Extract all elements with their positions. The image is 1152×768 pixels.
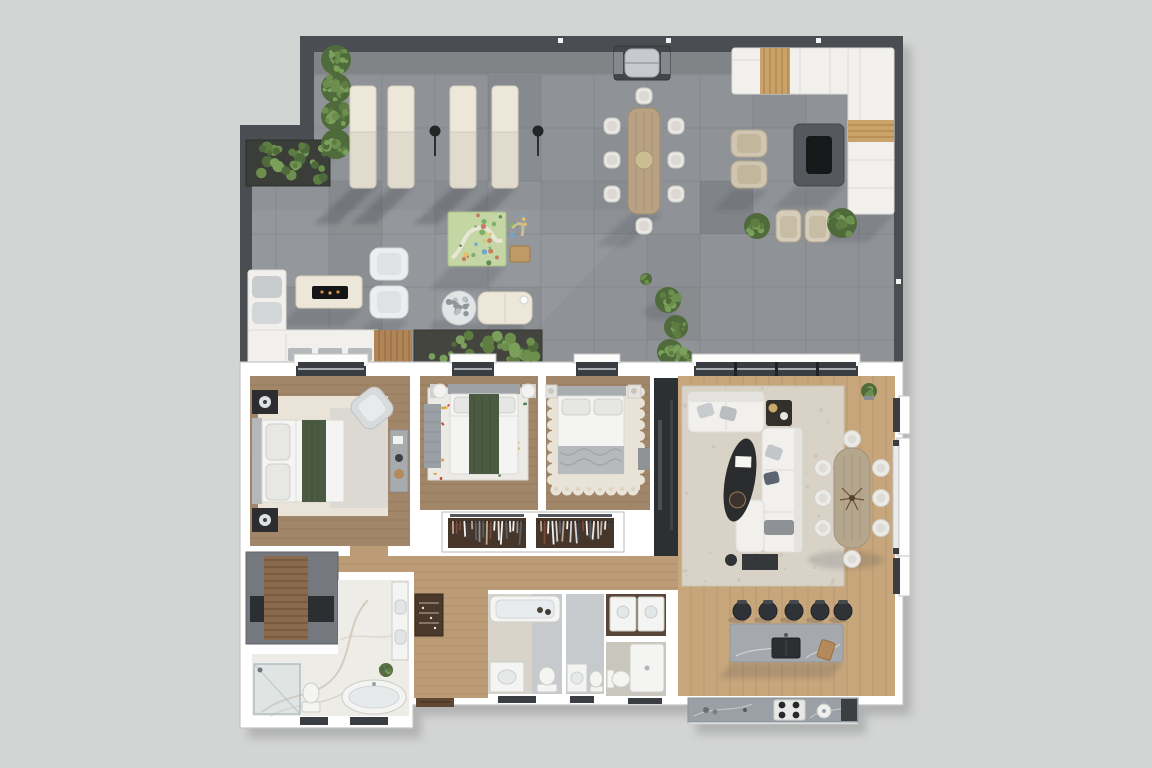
pebble-side-table [442,291,476,325]
sun-lounger [350,86,376,188]
sliding-door-living-room [692,354,860,376]
side-table [638,448,650,470]
runner-rug [424,404,441,468]
window [300,717,328,725]
sun-lounger [388,86,414,188]
roof-terrace [240,36,903,371]
throw-blanket [558,446,624,474]
window [893,438,910,556]
double-vanity [392,582,408,660]
window [350,717,388,725]
vanity-sink [490,662,524,692]
console-shelf [415,594,443,636]
wicker-armchair [776,210,801,242]
fire-pit-table [296,276,362,308]
double-bed [556,386,626,474]
nightstand [430,384,447,398]
fire-pit-table [794,124,844,186]
sun-lounger [450,86,476,188]
table-centerpiece [635,151,653,169]
double-bed [252,418,344,504]
throw [764,520,794,535]
kitchen-island [730,624,843,662]
cooktop-counter [688,698,858,722]
bathroom-1 [488,594,562,694]
wicker-armchair [731,130,767,157]
headboard [448,384,520,394]
nightstand [521,384,536,398]
loveseat [688,392,764,432]
bbq-grill [614,46,670,80]
appliance [841,699,857,721]
wc [606,642,666,696]
media-wall [654,378,678,556]
sliding-door-bedroom-1 [294,354,368,376]
bedroom-3 [546,385,650,496]
headboard [556,386,626,396]
vanity-sink [567,664,587,692]
white-lounge-armchair [370,286,408,318]
railing-post [816,38,821,43]
floor-plan-rendering [0,0,1152,768]
wardrobe-closets [442,512,624,552]
window [893,396,910,434]
double-bed [448,384,520,474]
nightstand [252,390,278,414]
right-wall-windows [893,396,910,596]
toilet [537,667,557,692]
headboard [252,418,262,504]
railing-post [558,38,563,43]
toy-cart [510,246,530,262]
door-opening [350,546,388,558]
freestanding-bathtub [342,680,406,714]
nightstand [252,508,278,532]
gas-hob [774,700,805,720]
window [893,556,910,596]
walk-in-shower [254,664,300,714]
wicker-armchair [805,210,830,242]
nightstand [628,385,641,398]
staircase [246,552,338,644]
railing-post [666,38,671,43]
entry-door [416,698,454,707]
sun-lounger [492,86,518,188]
bathroom-2 [566,594,604,694]
toilet [302,683,320,712]
dresser [390,430,408,492]
planter-box-top-left [246,140,330,186]
window [498,696,536,703]
toilet [607,670,630,688]
wicker-armchair [731,161,767,188]
laundry-room [606,594,666,636]
side-table [766,400,792,426]
white-lounge-armchair [370,248,408,280]
window [628,698,662,704]
ottoman-daybed [478,292,532,324]
toilet [590,671,604,692]
sliding-door-bedroom-2 [450,354,496,376]
sliding-door-bedroom-3 [574,354,620,376]
floor-plan-screenshot [0,0,1152,768]
apartment-interior [240,354,910,728]
window [570,696,594,703]
railing-post [896,279,901,284]
nightstand [546,385,557,398]
